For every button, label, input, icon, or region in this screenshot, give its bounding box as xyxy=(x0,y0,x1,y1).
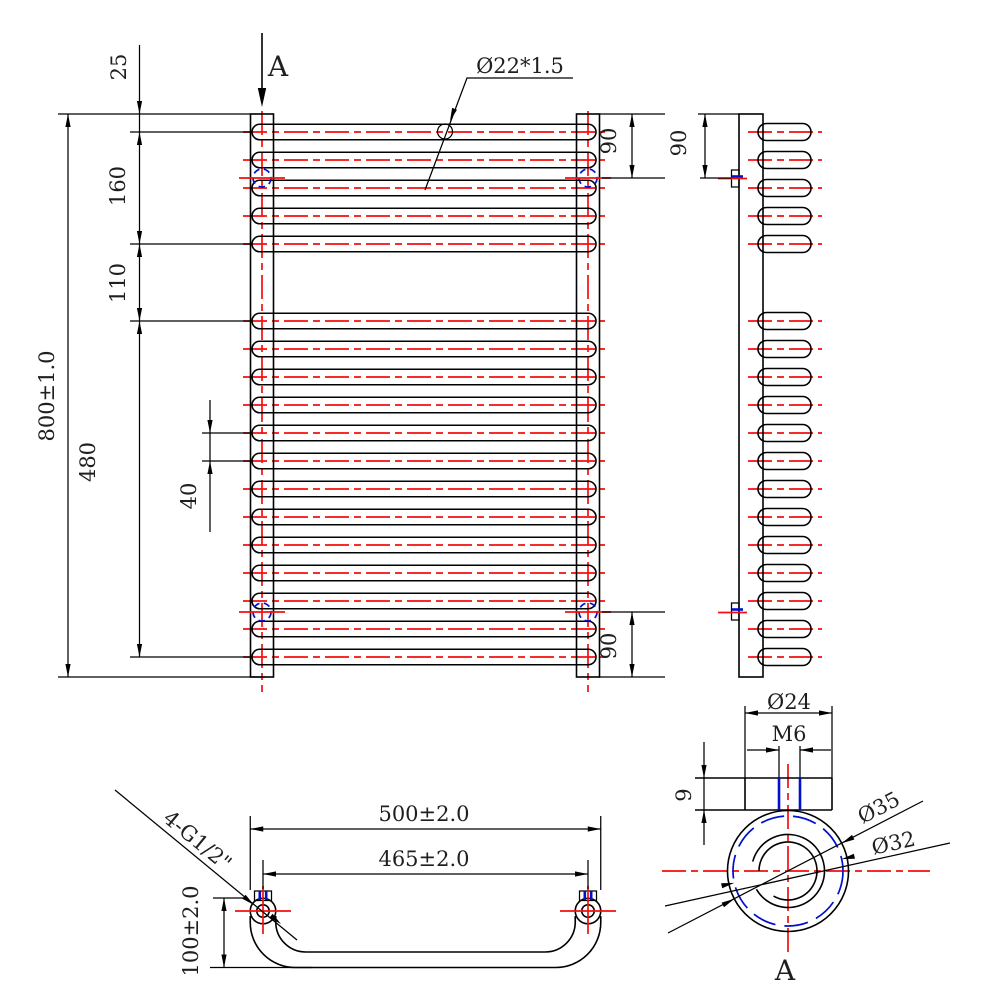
section-label-top: A xyxy=(267,50,289,83)
section-label-bottom: A xyxy=(774,954,796,987)
dim-top-offset: 25 xyxy=(107,54,131,81)
dim-outer-dia: Ø35 xyxy=(854,787,904,829)
side-bar-lobes xyxy=(748,124,822,666)
front-bars xyxy=(243,124,605,665)
side-mount-brackets xyxy=(718,170,747,620)
detail-bracket-plate xyxy=(695,778,832,810)
dim-depth: 100±2.0 xyxy=(179,885,203,976)
tube-callout-leader xyxy=(425,78,573,190)
dim-plate-thickness: 9 xyxy=(672,788,696,801)
thread-callout-label: 4-G1/2" xyxy=(159,806,237,876)
tube-callout-label: Ø22*1.5 xyxy=(476,54,564,78)
dim-overall-height: 800±1.0 xyxy=(35,350,59,441)
dim-mid-dia: Ø32 xyxy=(869,827,917,860)
drawing-canvas: Ø22*1.5 A xyxy=(0,0,1001,1001)
dim-side-mount-top: 90 xyxy=(667,130,691,157)
bottom-view: 500±2.0 465±2.0 100±2.0 4-G1/2" xyxy=(115,790,616,977)
side-collector-tube xyxy=(739,114,763,677)
dim-thread: M6 xyxy=(772,722,807,746)
dim-mount-bottom: 90 xyxy=(597,633,621,660)
dim-pitch: 40 xyxy=(177,483,201,510)
dim-gap: 110 xyxy=(106,263,130,303)
dim-center-distance: 465±2.0 xyxy=(378,847,469,871)
side-view: 90 xyxy=(667,114,822,677)
dim-upper-group: 160 xyxy=(106,166,130,206)
front-left-extension-lines xyxy=(58,114,265,677)
thread-callout-leader xyxy=(115,790,297,940)
dim-outer-width: 500±2.0 xyxy=(378,802,469,826)
dim-mount-top: 90 xyxy=(597,128,621,155)
technical-drawing: Ø22*1.5 A xyxy=(0,0,1001,1001)
tube-sections xyxy=(235,886,616,934)
section-marker-top xyxy=(258,33,266,107)
dim-bracket-dia: Ø24 xyxy=(767,690,811,714)
bottom-dimension-lines xyxy=(210,816,601,968)
side-dimension-lines xyxy=(698,114,739,178)
detail-view: Ø24 M6 9 Ø35 Ø32 A xyxy=(662,690,950,987)
dim-lower-group: 480 xyxy=(76,442,100,482)
front-view: Ø22*1.5 A xyxy=(35,33,665,692)
bowed-bar-outline xyxy=(250,916,601,968)
